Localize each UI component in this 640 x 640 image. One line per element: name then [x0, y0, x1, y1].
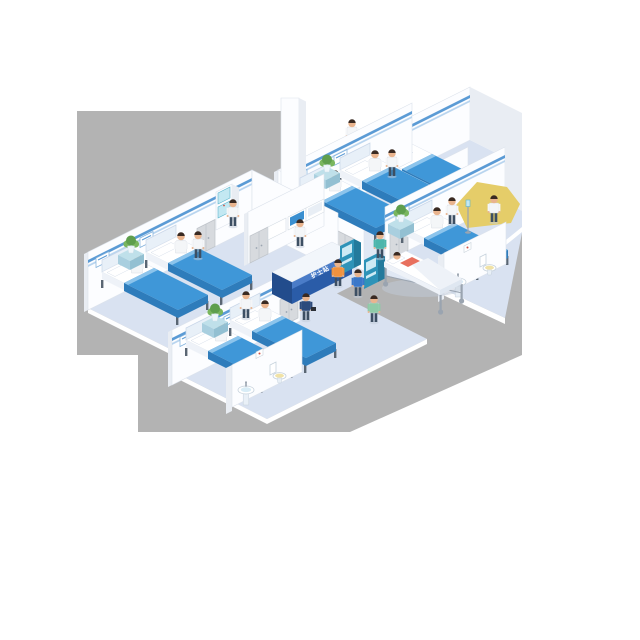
hospital-isometric-illustration: 护士站 — [0, 0, 640, 640]
briefcase — [311, 307, 316, 311]
hospital-scene-svg: 护士站 — [0, 0, 640, 640]
